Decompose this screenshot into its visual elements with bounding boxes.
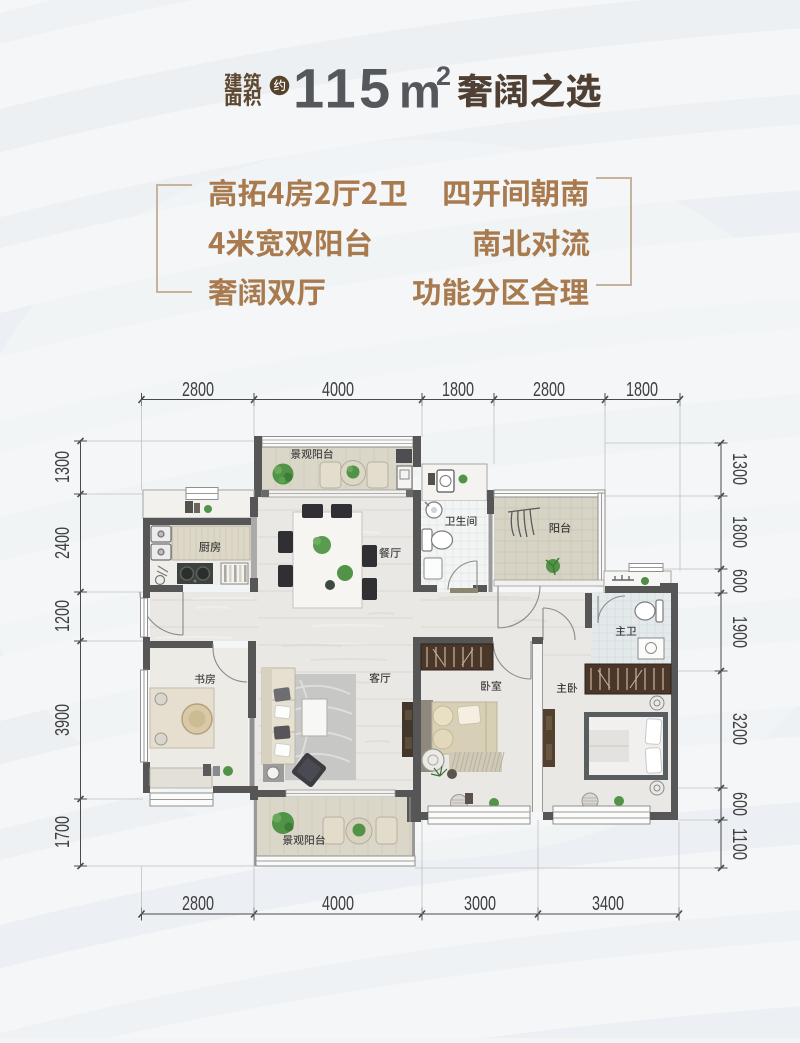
svg-text:2400: 2400 [51, 527, 74, 559]
svg-text:1300: 1300 [51, 451, 74, 483]
svg-text:600: 600 [728, 792, 751, 816]
svg-text:1800: 1800 [728, 516, 751, 548]
svg-text:2: 2 [436, 61, 451, 91]
svg-text:1800: 1800 [442, 378, 474, 401]
svg-text:1100: 1100 [728, 828, 751, 860]
svg-text:4000: 4000 [322, 378, 354, 401]
svg-text:600: 600 [728, 569, 751, 593]
svg-text:115: 115 [293, 57, 394, 120]
svg-text:m: m [399, 65, 441, 118]
svg-text:3000: 3000 [464, 892, 496, 915]
svg-text:2800: 2800 [533, 378, 565, 401]
svg-text:2800: 2800 [182, 892, 214, 915]
svg-text:2800: 2800 [182, 378, 214, 401]
svg-text:3900: 3900 [51, 704, 74, 736]
svg-text:1200: 1200 [51, 600, 74, 632]
svg-text:4000: 4000 [322, 892, 354, 915]
svg-text:1900: 1900 [728, 616, 751, 648]
svg-text:3200: 3200 [728, 713, 751, 745]
svg-text:3400: 3400 [592, 892, 624, 915]
svg-text:1300: 1300 [728, 453, 751, 485]
svg-text:1800: 1800 [626, 378, 658, 401]
svg-text:1700: 1700 [51, 816, 74, 848]
